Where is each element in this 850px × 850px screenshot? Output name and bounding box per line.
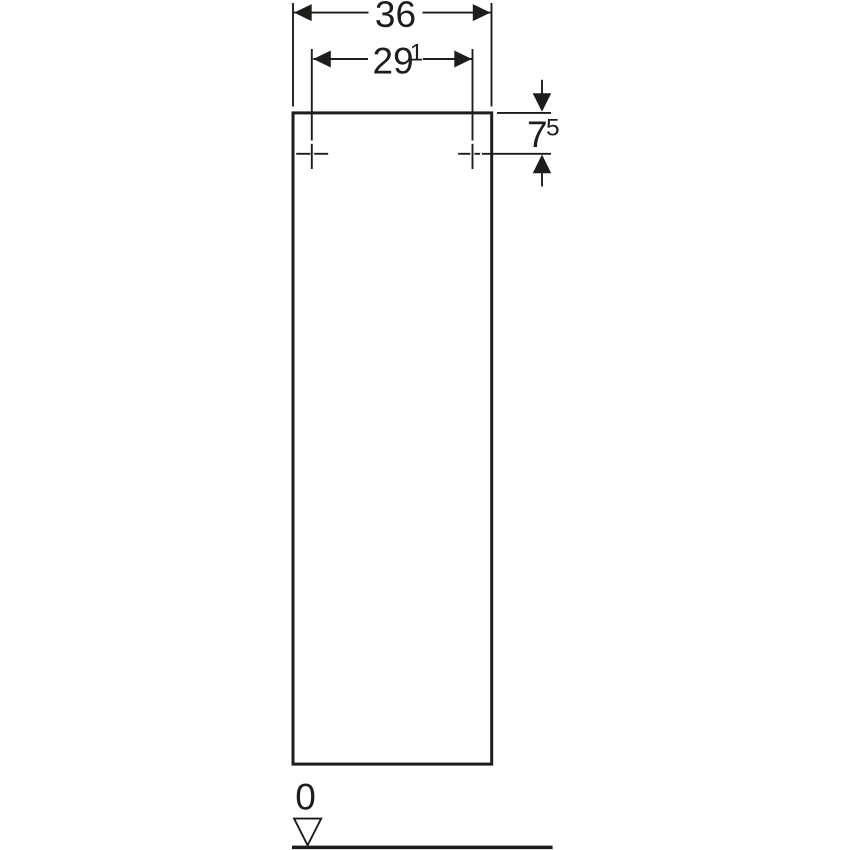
svg-text:1: 1: [410, 39, 424, 66]
svg-text:29: 29: [373, 41, 414, 82]
svg-text:5: 5: [546, 115, 560, 142]
svg-text:36: 36: [375, 0, 416, 35]
svg-text:0: 0: [295, 777, 316, 818]
svg-text:7: 7: [527, 114, 548, 155]
